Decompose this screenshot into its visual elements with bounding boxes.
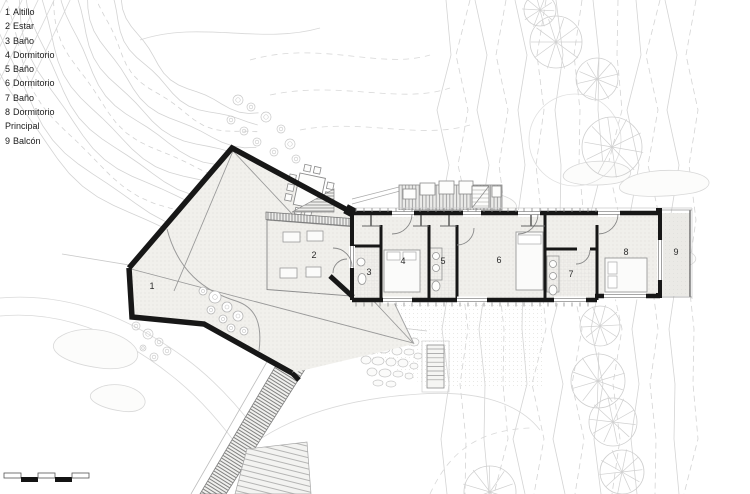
room-label-4: 4 — [400, 256, 405, 266]
room-label-3: 3 — [366, 267, 371, 277]
room-label-8: 8 — [623, 247, 628, 257]
bed-room-8 — [605, 258, 647, 292]
legend-item: 9Balcón — [5, 134, 71, 148]
legend-item: 1Altillo — [5, 5, 71, 19]
site-plan-drawing: 1 2 3 4 5 6 7 8 9 — [0, 0, 750, 494]
legend-item: 5Baño — [5, 62, 71, 76]
legend-item: 7Baño — [5, 91, 71, 105]
room-label-5: 5 — [440, 256, 445, 266]
roof-deck — [352, 181, 502, 210]
room-label-6: 6 — [496, 255, 501, 265]
room-label-2: 2 — [311, 250, 316, 260]
floor-plan-image: 1 2 3 4 5 6 7 8 9 1Altillo 2Estar 3Baño … — [0, 0, 750, 494]
bed-room-6 — [516, 232, 543, 290]
room-label-7: 7 — [568, 269, 573, 279]
room-label-9: 9 — [673, 247, 678, 257]
room-legend: 1Altillo 2Estar 3Baño 4Dormitorio 5Baño … — [5, 5, 71, 148]
scale-bar — [4, 473, 89, 482]
legend-item: 8Dormitorio Principal — [5, 105, 71, 134]
legend-item: 2Estar — [5, 19, 71, 33]
room-label-1: 1 — [149, 281, 154, 291]
legend-item: 4Dormitorio — [5, 48, 71, 62]
legend-item: 6Dormitorio — [5, 76, 71, 90]
legend-item: 3Baño — [5, 34, 71, 48]
deck-stair — [472, 186, 489, 208]
bedroom-wing — [352, 208, 692, 302]
